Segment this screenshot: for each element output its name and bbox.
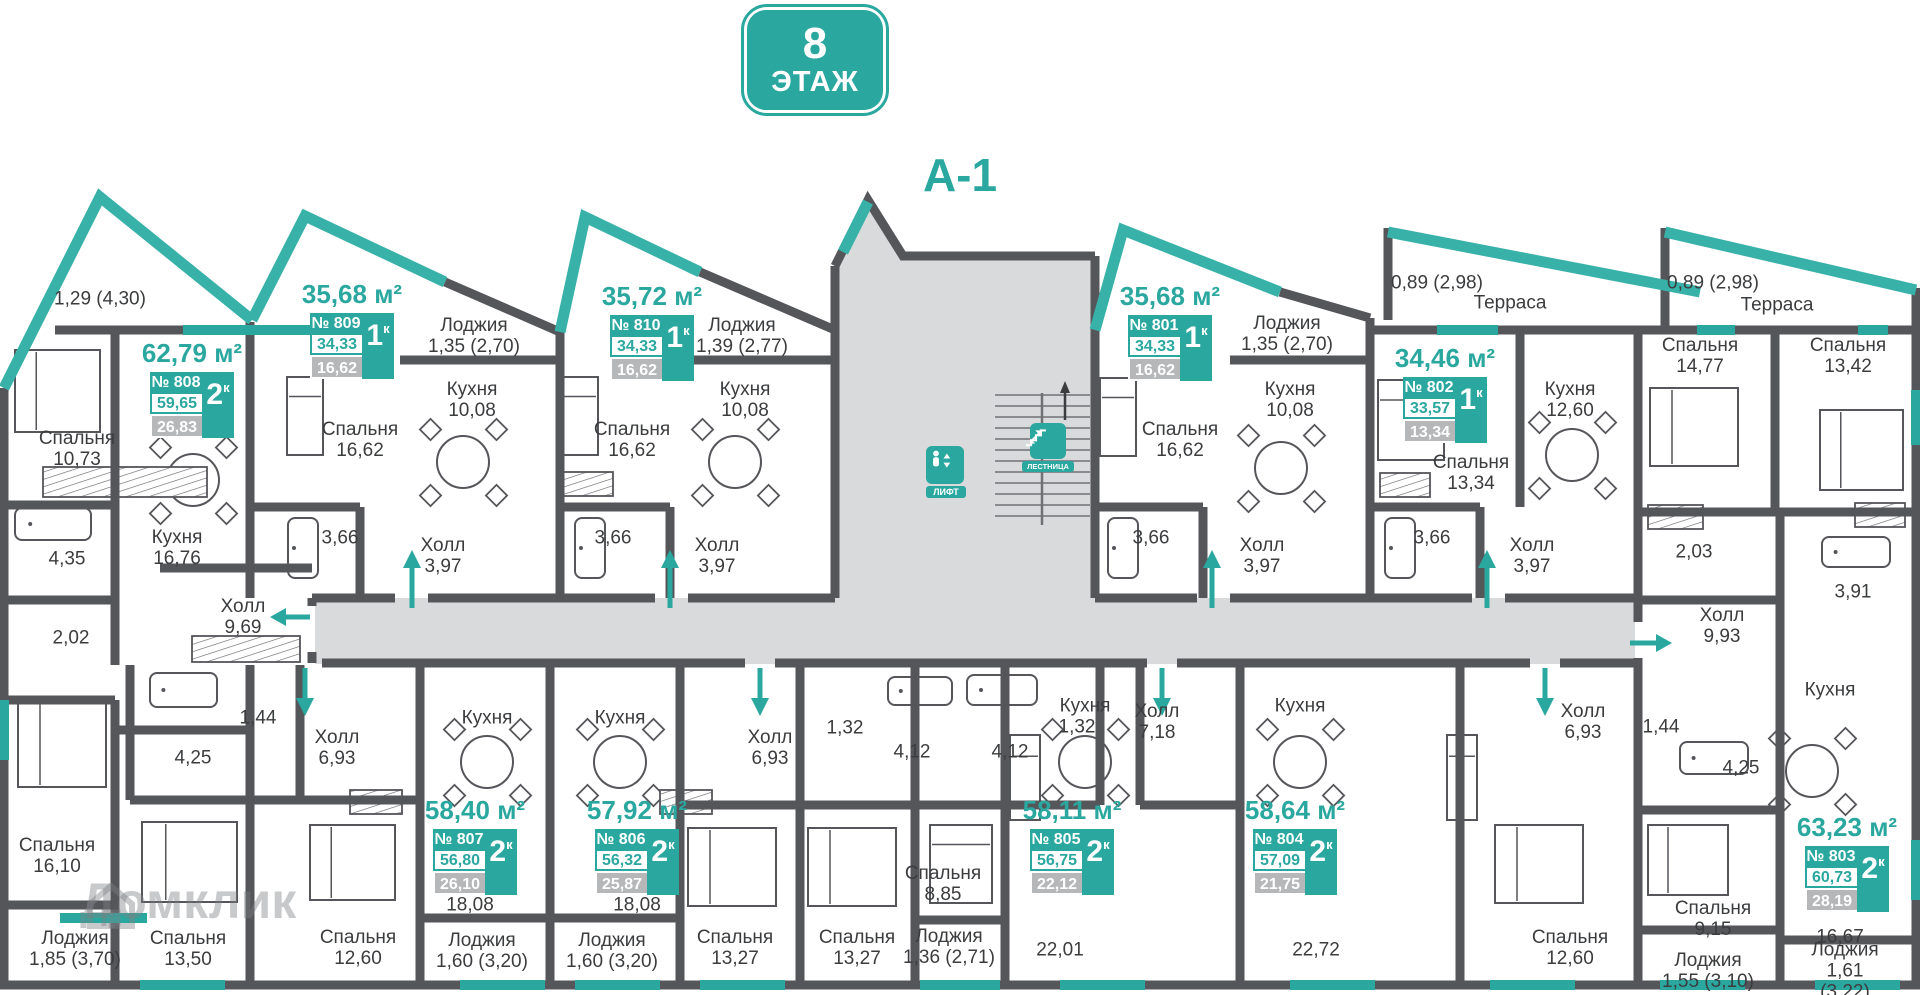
apartment-rooms-count: 1 xyxy=(1184,321,1201,355)
apartment-rooms-count: 2 xyxy=(206,378,223,412)
room-label: Холл 3,97 xyxy=(421,535,466,577)
watermark: Домклик xyxy=(80,872,296,930)
room-label: 4,25 xyxy=(1723,758,1760,779)
apartment-card-808[interactable]: 62,79 м² № 808 59,65 26,83 2к xyxy=(112,338,272,438)
apartment-rooms-suffix: к xyxy=(223,380,230,395)
apartment-rooms-badge: 2к xyxy=(1305,829,1337,895)
apartment-total-area: 35,72 м² xyxy=(572,281,732,312)
room-label: Спальня 10,73 xyxy=(39,428,115,470)
apartment-number: № 809 xyxy=(310,313,362,335)
apartment-area-1: 34,33 xyxy=(310,335,362,355)
apartment-rooms-badge: 1к xyxy=(1180,315,1212,381)
apartment-area-2: 28,19 xyxy=(1805,888,1857,912)
apartment-area-2: 25,87 xyxy=(595,871,647,895)
apartment-rooms-badge: 2к xyxy=(647,829,679,895)
apartment-total-area: 63,23 м² xyxy=(1767,812,1920,843)
apartment-card-801[interactable]: 35,68 м² № 801 34,33 16,62 1к xyxy=(1090,281,1250,381)
apartment-rooms-badge: 2к xyxy=(1082,829,1114,895)
room-label: Холл 6,93 xyxy=(748,727,793,769)
apartment-card-804[interactable]: 58,64 м² № 804 57,09 21,75 2к xyxy=(1215,795,1375,895)
stairs-label: ЛЕСТНИЦА xyxy=(1022,461,1074,472)
apartment-number: № 807 xyxy=(433,829,485,851)
apartment-card-802[interactable]: 34,46 м² № 802 33,57 13,34 1к xyxy=(1365,343,1525,443)
apartment-number: № 802 xyxy=(1403,377,1455,399)
room-label: Холл 6,93 xyxy=(315,727,360,769)
room-label: Кухня xyxy=(595,708,646,729)
room-label: 1,29 (4,30) xyxy=(54,289,146,310)
apartment-rooms-badge: 2к xyxy=(202,372,234,438)
room-label: Спальня 9,15 xyxy=(1675,898,1751,940)
room-label: Кухня 16,76 xyxy=(152,527,203,569)
apartment-rooms-suffix: к xyxy=(1476,385,1483,400)
apartment-number: № 806 xyxy=(595,829,647,851)
room-label: Спальня 16,62 xyxy=(594,419,670,461)
apartment-card-806[interactable]: 57,92 м² № 806 56,32 25,87 2к xyxy=(557,795,717,895)
apartment-rooms-suffix: к xyxy=(1878,854,1885,869)
room-label: Спальня 12,60 xyxy=(1532,927,1608,969)
apartment-card-809[interactable]: 35,68 м² № 809 34,33 16,62 1к xyxy=(272,279,432,379)
apartment-rooms-count: 2 xyxy=(489,835,506,869)
apartment-area-2: 16,62 xyxy=(610,357,662,381)
apartment-number: № 801 xyxy=(1128,315,1180,337)
apartment-rooms-suffix: к xyxy=(1103,837,1110,852)
apartment-rooms-count: 2 xyxy=(1861,852,1878,886)
apartment-rooms-suffix: к xyxy=(1201,323,1208,338)
apartment-area-1: 56,75 xyxy=(1030,851,1082,871)
room-label: 3,66 xyxy=(1133,528,1170,549)
room-label: 3,91 xyxy=(1835,582,1872,603)
room-label: Спальня 13,27 xyxy=(819,927,895,969)
apartment-rooms-badge: 2к xyxy=(485,829,517,895)
room-label: Терраса xyxy=(1474,293,1547,314)
room-label: Спальня 13,42 xyxy=(1810,335,1886,377)
apartment-area-1: 57,09 xyxy=(1253,851,1305,871)
apartment-area-2: 21,75 xyxy=(1253,871,1305,895)
room-label: 22,72 xyxy=(1292,940,1340,961)
apartment-area-2: 26,10 xyxy=(433,871,485,895)
floor-badge: 8 ЭТАЖ xyxy=(741,4,889,116)
apartment-card-805[interactable]: 58,11 м² № 805 56,75 22,12 2к xyxy=(992,795,1152,895)
room-label: 18,08 xyxy=(446,895,494,916)
room-label: Кухня xyxy=(462,708,513,729)
room-label: 1,32 xyxy=(827,718,864,739)
apartment-rooms-suffix: к xyxy=(683,323,690,338)
room-label: Лоджия 1,60 (3,20) xyxy=(436,930,528,972)
apartment-rooms-count: 2 xyxy=(651,835,668,869)
room-label: 1,44 xyxy=(240,708,277,729)
room-label: Спальня 8,85 xyxy=(905,863,981,905)
apartment-rooms-suffix: к xyxy=(506,837,513,852)
room-label: Спальня 14,77 xyxy=(1662,335,1738,377)
apartment-area-1: 60,73 xyxy=(1805,868,1857,888)
apartment-number: № 804 xyxy=(1253,829,1305,851)
apartment-rooms-count: 2 xyxy=(1086,835,1103,869)
apartment-rooms-count: 1 xyxy=(666,321,683,355)
room-label: Холл 9,93 xyxy=(1700,605,1745,647)
room-label: 4,12 xyxy=(992,742,1029,763)
room-label: Лоджия 1,55 (3,10) xyxy=(1662,950,1754,992)
floor-label: ЭТАЖ xyxy=(771,66,859,98)
watermark-house-icon xyxy=(80,872,142,934)
apartment-area-2: 16,62 xyxy=(310,355,362,379)
apartment-rooms-badge: 1к xyxy=(362,313,394,379)
apartment-total-area: 34,46 м² xyxy=(1365,343,1525,374)
room-label: Спальня 16,10 xyxy=(19,835,95,877)
apartment-rooms-badge: 2к xyxy=(1857,846,1889,912)
room-label: Терраса xyxy=(1741,295,1814,316)
room-label: Спальня 16,62 xyxy=(1142,419,1218,461)
apartment-rooms-badge: 1к xyxy=(1455,377,1487,443)
apartment-area-1: 59,65 xyxy=(150,394,202,414)
apartment-total-area: 58,64 м² xyxy=(1215,795,1375,826)
room-label: Кухня xyxy=(1805,680,1856,701)
room-label: Лоджия 1,36 (2,71) xyxy=(903,926,995,968)
room-label: 18,08 xyxy=(613,895,661,916)
apartment-area-1: 34,33 xyxy=(610,337,662,357)
room-label: Холл 3,97 xyxy=(1510,535,1555,577)
apartment-area-1: 56,80 xyxy=(433,851,485,871)
apartment-number: № 805 xyxy=(1030,829,1082,851)
room-label: 3,66 xyxy=(322,528,359,549)
apartment-rooms-badge: 1к xyxy=(662,315,694,381)
apartment-card-807[interactable]: 58,40 м² № 807 56,80 26,10 2к xyxy=(395,795,555,895)
room-label: Холл 3,97 xyxy=(1240,535,1285,577)
section-title: А-1 xyxy=(880,148,1040,202)
elevator-label: ЛИФТ xyxy=(926,486,966,498)
room-label: Лоджия 1,35 (2,70) xyxy=(428,315,520,357)
room-label: Кухня 12,60 xyxy=(1545,379,1596,421)
room-label: Спальня 12,60 xyxy=(320,927,396,969)
room-label: Кухня 10,08 xyxy=(1265,379,1316,421)
room-label: 3,66 xyxy=(595,528,632,549)
apartment-total-area: 57,92 м² xyxy=(557,795,717,826)
room-label: 4,12 xyxy=(894,742,931,763)
room-label: Холл 9,69 xyxy=(221,596,266,638)
room-label: Лоджия 1,61 (3,22) xyxy=(1808,940,1883,995)
room-label: 22,01 xyxy=(1036,940,1084,961)
room-label: 0,89 (2,98) xyxy=(1391,273,1483,294)
apartment-total-area: 58,40 м² xyxy=(395,795,555,826)
room-label: Холл 6,93 xyxy=(1561,701,1606,743)
apartment-rooms-count: 2 xyxy=(1309,835,1326,869)
stairs-icon: ЛЕСТНИЦА xyxy=(1022,423,1074,472)
room-label: Кухня xyxy=(1275,696,1326,717)
apartment-rooms-count: 1 xyxy=(1459,383,1476,417)
apartment-area-1: 34,33 xyxy=(1128,337,1180,357)
room-label: Спальня 13,50 xyxy=(150,928,226,970)
apartment-total-area: 35,68 м² xyxy=(272,279,432,310)
apartment-area-2: 22,12 xyxy=(1030,871,1082,895)
apartment-number: № 808 xyxy=(150,372,202,394)
apartment-total-area: 62,79 м² xyxy=(112,338,272,369)
apartment-rooms-suffix: к xyxy=(668,837,675,852)
apartment-area-2: 26,83 xyxy=(150,414,202,438)
room-label: Холл 7,18 xyxy=(1135,701,1180,743)
room-label: Холл 3,97 xyxy=(695,535,740,577)
room-label: Кухня 10,08 xyxy=(447,379,498,421)
apartment-number: № 810 xyxy=(610,315,662,337)
apartment-card-803[interactable]: 63,23 м² № 803 60,73 28,19 2к xyxy=(1767,812,1920,912)
room-label: Кухня 10,08 xyxy=(720,379,771,421)
apartment-rooms-count: 1 xyxy=(366,319,383,353)
room-label: Лоджия 1,35 (2,70) xyxy=(1241,313,1333,355)
apartment-total-area: 58,11 м² xyxy=(992,795,1152,826)
room-label: Кухня xyxy=(1060,696,1111,717)
room-label: 4,25 xyxy=(175,748,212,769)
apartment-area-1: 56,32 xyxy=(595,851,647,871)
room-label: Лоджия 1,60 (3,20) xyxy=(566,930,658,972)
apartment-total-area: 35,68 м² xyxy=(1090,281,1250,312)
room-label: 1,32 xyxy=(1059,717,1096,738)
room-label: 4,35 xyxy=(49,549,86,570)
room-label: Лоджия 1,85 (3,70) xyxy=(29,928,121,970)
apartment-area-2: 16,62 xyxy=(1128,357,1180,381)
room-label: 2,02 xyxy=(53,628,90,649)
floor-plan-page: 8 ЭТАЖ А-1 ЛИФТ ЛЕСТНИЦА xyxy=(0,0,1920,995)
room-label: 3,66 xyxy=(1414,528,1451,549)
apartment-number: № 803 xyxy=(1805,846,1857,868)
apartment-card-810[interactable]: 35,72 м² № 810 34,33 16,62 1к xyxy=(572,281,732,381)
floor-number: 8 xyxy=(803,22,827,66)
apartment-rooms-suffix: к xyxy=(1326,837,1333,852)
room-label: Спальня 16,62 xyxy=(322,419,398,461)
room-label: Спальня 13,34 xyxy=(1433,452,1509,494)
elevator-icon: ЛИФТ xyxy=(926,446,966,498)
apartment-rooms-suffix: к xyxy=(383,321,390,336)
apartment-area-1: 33,57 xyxy=(1403,399,1455,419)
room-label: 0,89 (2,98) xyxy=(1667,273,1759,294)
room-label: 2,03 xyxy=(1676,542,1713,563)
apartment-area-2: 13,34 xyxy=(1403,419,1455,443)
room-label: Спальня 13,27 xyxy=(697,927,773,969)
room-label: 1,44 xyxy=(1643,717,1680,738)
